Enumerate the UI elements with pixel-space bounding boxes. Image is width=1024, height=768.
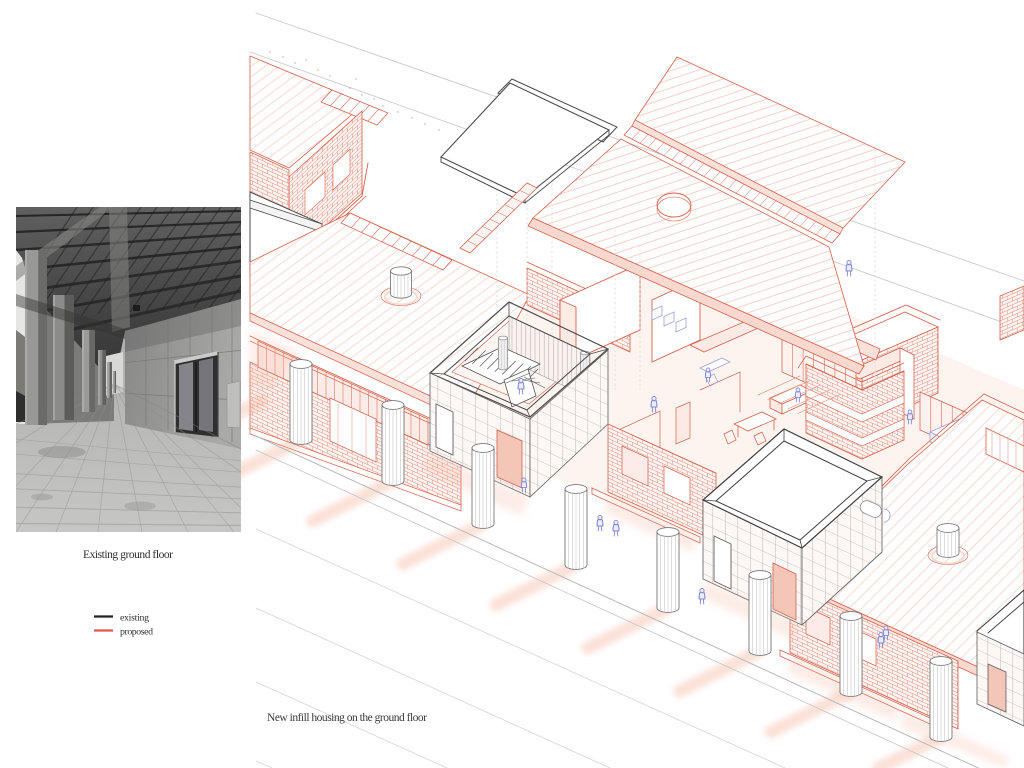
svg-text:existing: existing [120,613,149,624]
svg-text:proposed: proposed [120,627,153,638]
svg-text:Existing ground floor: Existing ground floor [83,549,173,561]
svg-text:New infill housing on the grou: New infill housing on the ground floor [267,712,427,724]
